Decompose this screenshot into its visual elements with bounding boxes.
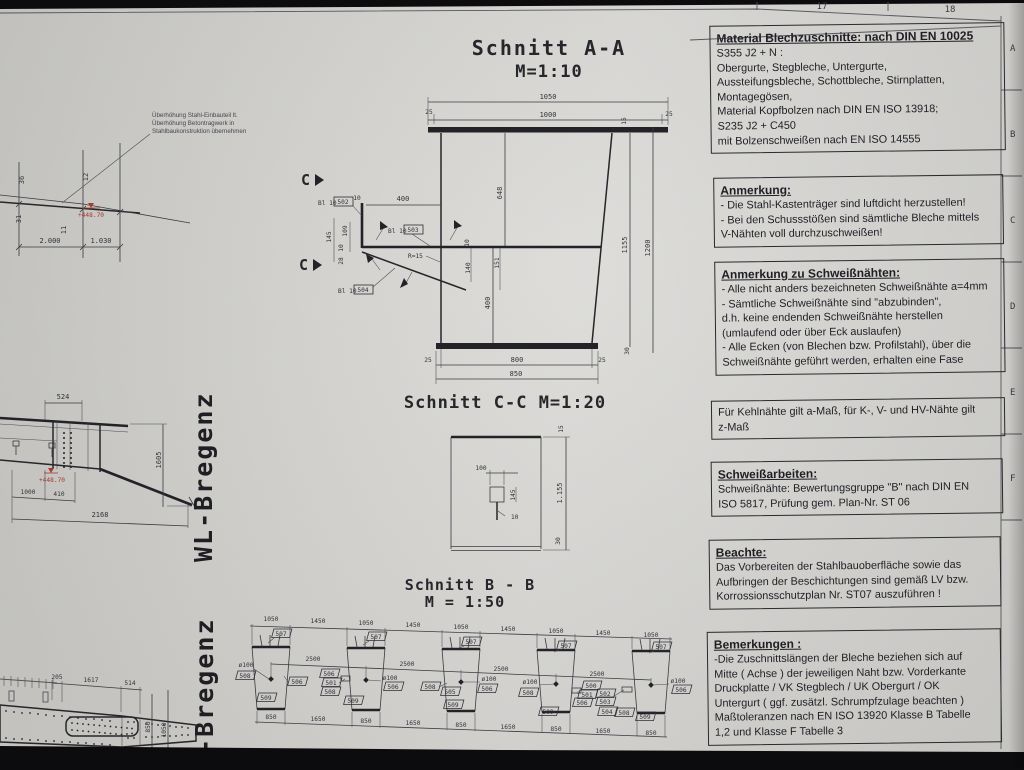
- note-box-kehlnaehte: Für Kehlnähte gilt a-Maß, für K-, V- und…: [711, 397, 1005, 440]
- section-aa: Schnitt A-A M=1:10 1050 1000 25 25 15 11…: [299, 36, 673, 384]
- diameter-label: ø100: [523, 679, 538, 686]
- dim-label: 25: [424, 357, 432, 364]
- position-number: 502: [337, 199, 348, 206]
- dim-label: 151: [494, 257, 501, 268]
- dim-label: 15: [558, 425, 565, 433]
- paper-edge-shadow: [1008, 0, 1024, 768]
- position-number: 506: [387, 684, 398, 691]
- dim-label: 15: [621, 117, 628, 125]
- dim-label: 1155: [621, 237, 629, 254]
- bb-position-labels: 507 ø100 508 506 509 507 506 501 508 ø10…: [236, 629, 692, 721]
- position-number: 509: [347, 698, 358, 705]
- dim-label: 850: [360, 718, 371, 725]
- dim-label: 1650: [501, 724, 516, 731]
- dim-label: 1450: [501, 626, 516, 633]
- dim-label: 145: [326, 231, 333, 242]
- note-box-material: Material Blechzuschnitte: nach DIN EN 10…: [709, 22, 1006, 154]
- section-cut-marker-c: C C: [299, 171, 324, 274]
- top-flange: [428, 127, 668, 133]
- cut-letter: C: [299, 256, 309, 274]
- position-number: 508: [424, 684, 435, 691]
- dim-label: 1.030: [90, 237, 111, 245]
- position-number: 507: [275, 631, 286, 638]
- dim-label: 850: [550, 726, 561, 733]
- dim-label: 1650: [311, 716, 326, 723]
- position-number: 508: [522, 690, 533, 697]
- dim-label: 2500: [306, 656, 321, 663]
- section-title: Schnitt A-A: [472, 36, 626, 60]
- notes-column: Material Blechzuschnitte: nach DIN EN 10…: [697, 0, 1018, 770]
- dim-label: 1605: [155, 452, 163, 469]
- dim-label: 205: [51, 674, 62, 681]
- dim-label: 2500: [494, 666, 509, 673]
- dim-label: 850: [455, 722, 466, 729]
- dim-label: 400: [484, 297, 492, 310]
- dim-label: 25: [598, 357, 606, 364]
- position-number: 504: [601, 709, 612, 716]
- position-number: 500: [585, 683, 596, 690]
- position-number: 504: [357, 287, 368, 294]
- dim-label: 1000: [540, 111, 557, 119]
- dense-stud-dots: [71, 722, 133, 735]
- diameter-label: ø100: [671, 678, 686, 685]
- position-number: 506: [675, 687, 686, 694]
- camber-diagram: 36 12 31 11 2.000 1.030 +448.70: [0, 143, 190, 262]
- level-annotation: +448.70: [39, 477, 65, 484]
- position-number: 509: [542, 709, 553, 716]
- hanger-bolt: [13, 441, 55, 457]
- note-line: V-Nähten voll durchzuschweißen!: [721, 224, 997, 242]
- dim-label: 648: [496, 187, 504, 200]
- dim-label: 514: [124, 680, 135, 687]
- position-number: 503: [599, 699, 610, 706]
- stud-plate: [490, 487, 504, 502]
- dim-label: 100: [475, 465, 486, 472]
- dim-label: 410: [53, 491, 64, 498]
- note-box-bemerkungen: Bemerkungen : -Die Zuschnittslängen der …: [707, 628, 1002, 745]
- note-title: Material Blechzuschnitte: nach DIN EN 10…: [716, 27, 997, 46]
- diameter-label: ø100: [239, 662, 254, 669]
- dim-label: 36: [18, 176, 26, 184]
- dim-label: 1650: [406, 720, 421, 727]
- bottom-flange: [436, 343, 598, 349]
- section-title: Schnitt B - B: [405, 576, 535, 594]
- section-title: Schnitt C-C M=1:20: [404, 393, 606, 413]
- dim-label: 2500: [590, 671, 605, 678]
- note-line: Korrossionsschutzplan Nr. ST07 auszuführ…: [716, 587, 994, 605]
- note-line: ISO 5817, Prüfung gem. Plan-Nr. ST 06: [718, 494, 996, 512]
- dim-label: 28: [338, 257, 345, 265]
- position-number: 509: [260, 695, 271, 702]
- dim-label: 2.000: [39, 237, 60, 245]
- dim-label: 1450: [596, 630, 611, 637]
- section-cc: Schnitt C-C M=1:20 100 145 10 15 1.155 3…: [404, 393, 606, 551]
- section-bb: Schnitt B - B M = 1:50: [236, 576, 692, 737]
- dim-label: 30: [624, 347, 631, 355]
- dim-label: 109: [342, 225, 349, 236]
- dim-label: 850: [265, 714, 276, 721]
- dim-label: 850: [645, 730, 656, 737]
- camber-note: Überhöhung Stahl-Einbauteil lt. Überhöhu…: [62, 112, 247, 203]
- dim-label: 12: [82, 173, 90, 181]
- note-line: 1,2 und Klasse F Tabelle 3: [715, 722, 995, 740]
- dim-label: 10: [464, 239, 471, 247]
- position-number: 506: [291, 679, 302, 686]
- position-number: 508: [324, 689, 335, 696]
- position-number: 503: [407, 227, 418, 234]
- dim-label: 31: [15, 215, 23, 223]
- position-number: 506: [576, 700, 587, 707]
- dim-label: 1050: [549, 628, 564, 635]
- note-line: Überhöhung Stahl-Einbauteil lt.: [152, 112, 238, 119]
- position-number: 501: [325, 680, 336, 687]
- note-line: Überhöhung Betontragwerk in: [152, 120, 235, 127]
- dim-label: 145: [510, 489, 517, 500]
- bb-centre-dims: 2500 2500 2500 2500: [271, 656, 651, 683]
- note-box-schweissnaehte: Anmerkung zu Schweißnähten: - Alle nicht…: [714, 258, 1005, 375]
- splice-detail: 524 1605 +448.70 1000 410 2168: [0, 393, 196, 528]
- section-scale: M = 1:50: [425, 593, 505, 611]
- diameter-label: ø100: [482, 676, 497, 683]
- right-web: [592, 133, 612, 343]
- project-watermark-upper: WL-Bregenz: [189, 391, 218, 562]
- dim-label: 1.155: [556, 482, 564, 503]
- dim-label: 2500: [400, 661, 415, 668]
- position-number: 507: [370, 634, 381, 641]
- note-box-schweissarbeiten: Schweißarbeiten: Schweißnähte: Bewertung…: [711, 458, 1004, 517]
- dim-label: 10: [511, 514, 519, 521]
- dim-label: 850: [510, 370, 523, 378]
- dim-label: 25: [425, 109, 433, 116]
- dim-label: 11: [60, 226, 68, 234]
- cut-letter: C: [301, 171, 311, 189]
- position-number: 507: [465, 639, 476, 646]
- dim-label: 400: [397, 195, 410, 203]
- position-number: 507: [655, 644, 666, 651]
- position-number: 509: [447, 702, 458, 709]
- position-number: 509: [639, 714, 650, 721]
- level-annotation: +448.70: [78, 212, 104, 219]
- dim-label: 30: [555, 537, 562, 545]
- flange-plan: 205 1617 514 850 1050: [0, 674, 196, 753]
- radius-label: R=15: [408, 253, 423, 260]
- dim-label: 1050: [359, 620, 374, 627]
- dim-label: 1000: [21, 489, 36, 496]
- bolt-dots: [63, 432, 72, 468]
- note-line: mit Bolzenschweißen nach EN ISO 14555: [718, 131, 999, 149]
- dim-label: 1050: [644, 632, 659, 639]
- dim-label: 140: [465, 262, 472, 273]
- dim-label: 10: [338, 244, 345, 252]
- dim-label: 1050: [264, 616, 279, 623]
- dim-label: 1650: [596, 728, 611, 735]
- dim-label: 1050: [540, 93, 557, 101]
- position-number: 505: [444, 689, 455, 696]
- dim-label: 800: [511, 356, 524, 364]
- note-line: Schweißnähte geführt werden, erhalten ei…: [722, 352, 998, 370]
- dim-label: 1200: [644, 240, 652, 257]
- dim-label: 2168: [92, 511, 109, 519]
- project-watermark-lower: WL-Bregenz: [190, 617, 219, 768]
- dim-label: 1050: [454, 624, 469, 631]
- note-box-beachte: Beachte: Das Vorbereiten der Stahlbauobe…: [709, 536, 1002, 609]
- note-line: Stahlbaukonstruktion übernehmen: [152, 128, 247, 135]
- note-box-anmerkung: Anmerkung: - Die Stahl-Kastenträger sind…: [713, 174, 1004, 247]
- dim-label: 1617: [84, 677, 99, 684]
- dim-label: 850: [145, 721, 152, 732]
- dim-label: 1450: [406, 622, 421, 629]
- dim-label: 10: [353, 195, 361, 202]
- drawing-photo: { "colors": {"paper":"#d6d5d2","line":"#…: [0, 0, 1024, 768]
- dim-label: 25: [665, 111, 673, 118]
- position-number: 506: [481, 686, 492, 693]
- position-number: 508: [239, 673, 250, 680]
- diameter-label: ø100: [383, 675, 398, 682]
- dim-label: 524: [57, 393, 70, 401]
- section-scale: M=1:10: [515, 62, 582, 82]
- position-number: 506: [323, 671, 334, 678]
- bb-top-dims: 1050 1450 1050 1450 1050 1450 1050 1450 …: [250, 616, 672, 649]
- position-number: 507: [560, 643, 571, 650]
- position-number: 508: [618, 710, 629, 717]
- dim-label: 1450: [311, 618, 326, 625]
- dim-label: 1050: [161, 722, 168, 737]
